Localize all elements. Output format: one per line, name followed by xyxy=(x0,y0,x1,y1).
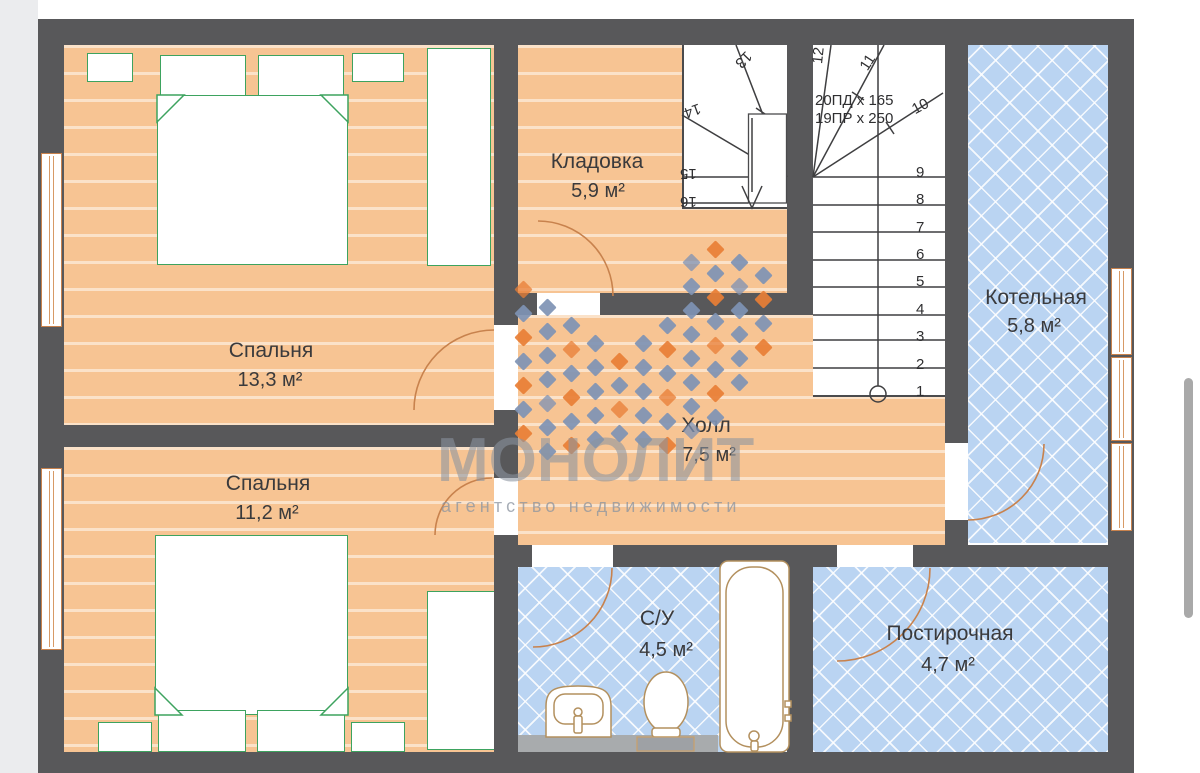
bed xyxy=(157,95,348,265)
window-bedroom1 xyxy=(41,153,62,327)
wall-top xyxy=(38,19,1134,45)
room-label-boiler: Котельная xyxy=(985,286,1087,310)
room-area-bedroom1: 13,3 м² xyxy=(238,368,303,392)
stair-step-number: 8 xyxy=(916,192,924,207)
room-area-storage: 5,9 м² xyxy=(571,179,625,203)
stair-step-number: 1 xyxy=(916,384,924,399)
nightstand xyxy=(87,53,133,82)
room-label-bedroom1: Спальня xyxy=(229,339,313,363)
room-label-storage: Кладовка xyxy=(551,150,644,174)
stair-step-number: 7 xyxy=(916,220,924,235)
wall-bottom xyxy=(38,752,1134,773)
room-area-bedroom2: 11,2 м² xyxy=(235,501,298,525)
wall-between-bedrooms xyxy=(64,425,494,447)
nightstand xyxy=(98,722,152,752)
bathroom-counter xyxy=(518,735,718,753)
pillow xyxy=(258,55,344,98)
stair-step-number: 5 xyxy=(916,274,924,289)
stair-step-number: 12 xyxy=(810,46,827,64)
watermark-brand: МОНОЛИТ xyxy=(437,430,757,492)
wardrobe xyxy=(427,48,491,266)
room-label-bedroom2: Спальня xyxy=(226,472,310,496)
stair-spec-line1: 20ПД x 165 xyxy=(815,92,894,110)
scrollbar-thumb[interactable] xyxy=(1184,378,1193,618)
stair-step-number: 2 xyxy=(916,357,924,372)
watermark-tagline: агентство недвижимости xyxy=(441,496,741,517)
window-boiler-1 xyxy=(1111,268,1132,355)
wall-bath-laundry xyxy=(787,567,813,752)
page-left-margin xyxy=(0,0,38,773)
pillow xyxy=(158,710,246,752)
room-area-boiler: 5,8 м² xyxy=(1007,314,1061,338)
room-area-bathroom: 4,5 м² xyxy=(639,638,693,662)
stair-step-number: 15 xyxy=(680,166,697,181)
nightstand xyxy=(351,722,405,752)
pillow xyxy=(257,710,345,752)
door-opening-bathroom xyxy=(532,545,613,567)
window-boiler-3 xyxy=(1111,443,1132,531)
window-bedroom2 xyxy=(41,468,62,650)
window-boiler-2 xyxy=(1111,357,1132,441)
door-opening-boiler xyxy=(945,443,968,520)
wardrobe xyxy=(427,591,496,750)
stair-step-number: 4 xyxy=(916,302,924,317)
room-label-bathroom: С/У xyxy=(640,607,674,631)
room-label-laundry: Постирочная xyxy=(886,622,1013,646)
pillow xyxy=(160,55,246,98)
bed xyxy=(155,535,348,715)
nightstand xyxy=(352,53,404,82)
room-area-laundry: 4,7 м² xyxy=(921,653,975,677)
floor-plan-canvas: 20ПД x 165 19ПР x 250 123456789101112131… xyxy=(0,0,1200,773)
stair-spec-line2: 19ПР x 250 xyxy=(815,110,894,128)
stair-step-number: 9 xyxy=(916,165,924,180)
stair-step-number: 3 xyxy=(916,329,924,344)
stair-step-number: 16 xyxy=(680,194,697,209)
stair-step-number: 6 xyxy=(916,247,924,262)
stair-spec: 20ПД x 165 19ПР x 250 xyxy=(815,92,894,128)
door-opening-laundry xyxy=(837,545,913,567)
wall-stair-left xyxy=(787,45,813,315)
stair-upper-flight-area xyxy=(682,45,789,209)
